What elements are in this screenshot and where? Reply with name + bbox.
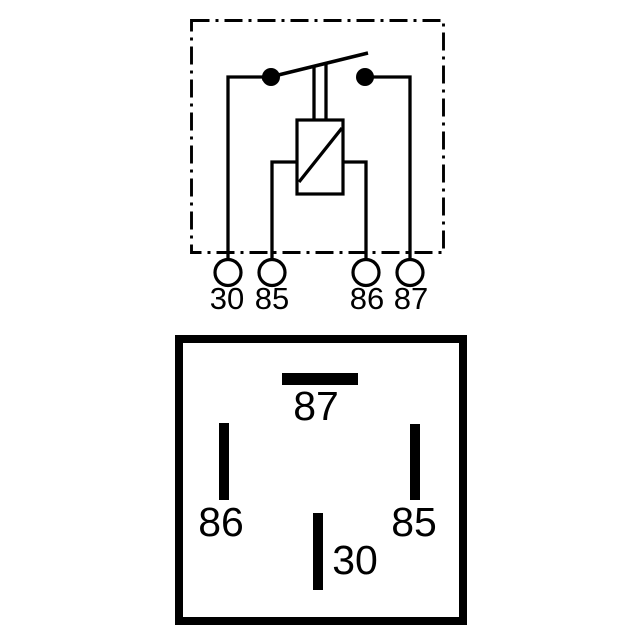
terminal-label-87: 87 xyxy=(394,281,428,316)
wire-terminal-86 xyxy=(342,162,366,260)
pin-blade-30 xyxy=(313,513,323,590)
terminal-label-85: 85 xyxy=(255,281,289,316)
wire-terminal-87 xyxy=(365,77,410,260)
wire-terminal-85 xyxy=(272,162,298,260)
pin-label-85: 85 xyxy=(391,499,437,545)
pin-label-87: 87 xyxy=(293,383,339,429)
pin-blade-86 xyxy=(219,423,229,500)
terminal-label-30: 30 xyxy=(210,281,244,316)
switch-contact-dot-right xyxy=(356,68,374,86)
relay-pinout: 87 86 85 30 xyxy=(179,339,463,621)
pin-label-30: 30 xyxy=(332,537,378,583)
diagram-canvas: 30 85 86 87 87 86 85 30 xyxy=(0,0,640,640)
switch-contact-dot-left xyxy=(262,68,280,86)
relay-schematic: 30 85 86 87 xyxy=(192,21,444,317)
relay-diagram-svg: 30 85 86 87 87 86 85 30 xyxy=(0,0,640,640)
pin-label-86: 86 xyxy=(198,499,244,545)
pin-blade-85 xyxy=(410,424,420,500)
terminal-label-86: 86 xyxy=(350,281,384,316)
wire-terminal-30 xyxy=(228,77,271,260)
